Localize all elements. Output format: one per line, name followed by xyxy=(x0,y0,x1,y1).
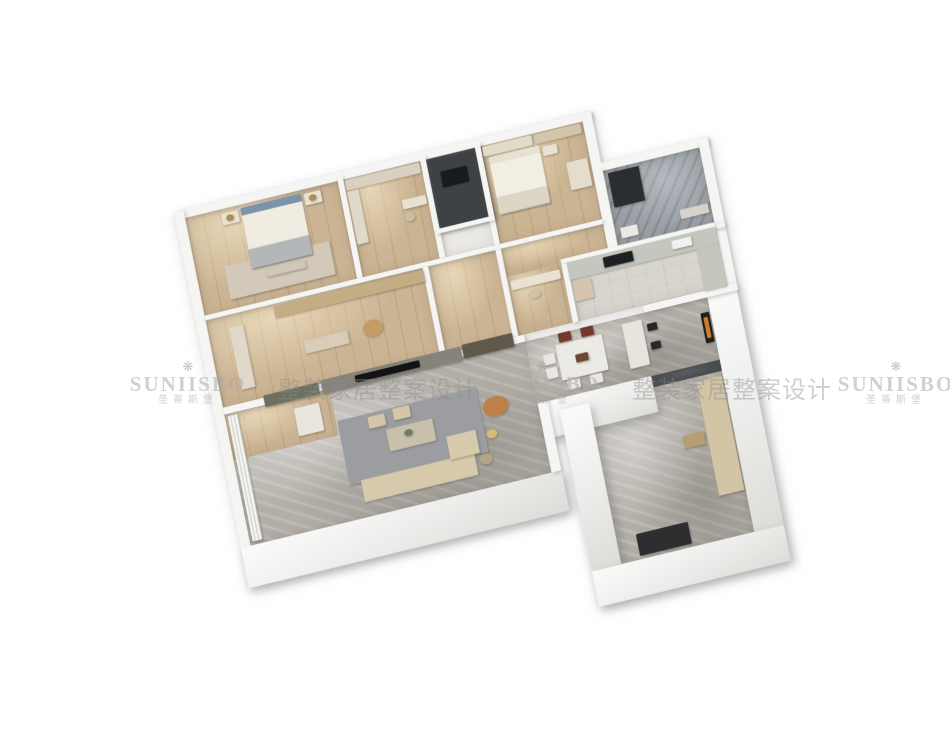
watermark-brand-text: SUNIISBO xyxy=(836,373,950,395)
flower-icon: ❋ xyxy=(836,360,950,373)
bathroom-shower xyxy=(608,166,646,208)
floorplan-3d-model xyxy=(185,218,186,219)
watermark-tile: ❋ SUNIISBO 圣蒂斯堡 整装家居整案设计 xyxy=(836,360,950,412)
living-cabinet-nw xyxy=(294,403,325,437)
watermark-logo: ❋ SUNIISBO 圣蒂斯堡 xyxy=(836,360,950,407)
floorplan-render-canvas: ❋ SUNIISBO 圣蒂斯堡 整装家居整案设计 ❋ SUNIISBO 圣蒂斯堡… xyxy=(0,0,950,733)
watermark-brand-chinese: 圣蒂斯堡 xyxy=(836,395,950,407)
